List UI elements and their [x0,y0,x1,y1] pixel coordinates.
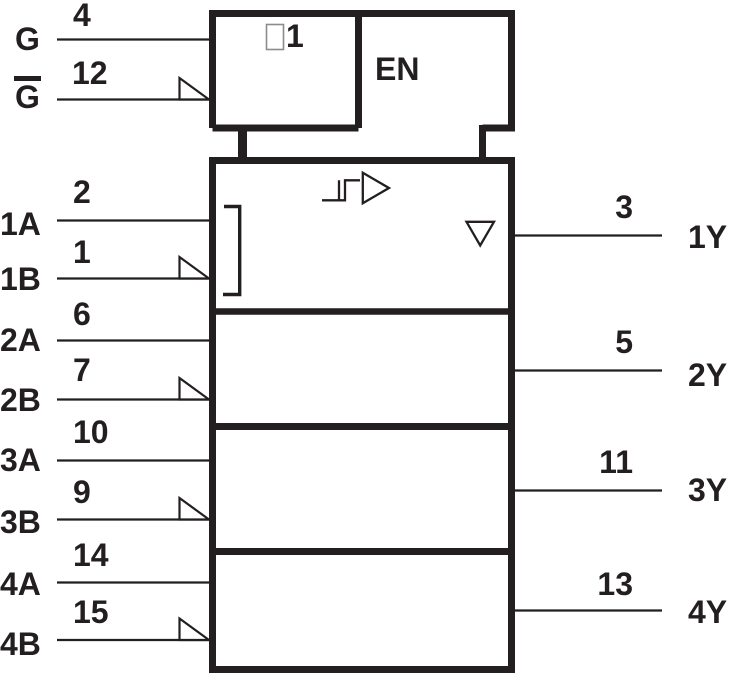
pin-number-4b: 15 [73,596,109,628]
polarity-indicator-icon-gbar [180,78,210,100]
enable-block-outline [213,14,512,129]
polarity-indicator-icon-4b [180,619,210,641]
signal-label-3a: 3A [0,444,41,476]
signal-label-3y: 3Y [688,474,727,506]
signal-label-4a: 4A [0,568,41,600]
pin-number-1a: 2 [73,176,91,208]
enable-label: EN [375,53,419,85]
pin-number-3a: 10 [73,416,109,448]
hysteresis-icon [322,180,360,200]
polarity-indicator-icon-2b [180,378,210,400]
signal-label-1b: 1B [0,263,41,295]
pin-number-2y: 5 [580,326,633,358]
signal-label-3b: 3B [0,506,41,538]
signal-label-2y: 2Y [688,359,727,391]
qualifier-symbol-text: 1 [286,20,304,52]
signal-label-2a: 2A [0,324,41,356]
pin-number-3b: 9 [73,476,91,508]
three-state-output-icon [467,222,495,246]
polarity-indicator-icon-1b [180,257,210,279]
pin-number-2a: 6 [73,298,91,330]
signal-label-4b: 4B [0,628,41,660]
logic-diagram: 4 G 12 G 1 EN 2 1A 1 1B 3 1Y 6 2A 7 2B 5… [0,0,732,674]
pin-number-3y: 11 [580,446,633,478]
pin-number-1b: 1 [73,236,91,268]
pin-number-2b: 7 [73,354,91,386]
pin-number-gbar: 12 [72,57,108,89]
signal-label-1y: 1Y [688,221,727,253]
differential-bracket-icon [223,207,240,295]
polarity-indicator-icon-3b [180,498,210,520]
pin-number-g: 4 [73,0,91,31]
signal-label-4y: 4Y [688,596,727,628]
signal-label-gbar: G [14,76,41,113]
pin-number-1y: 3 [580,191,633,223]
pin-number-4y: 13 [580,568,633,600]
pin-number-4a: 14 [73,539,109,571]
main-block-outline [213,161,512,670]
signal-label-2b: 2B [0,384,41,416]
amplifier-icon [363,173,389,203]
qualifier-symbol-box [267,25,284,50]
signal-label-g: G [15,23,40,55]
signal-label-1a: 1A [0,208,41,240]
